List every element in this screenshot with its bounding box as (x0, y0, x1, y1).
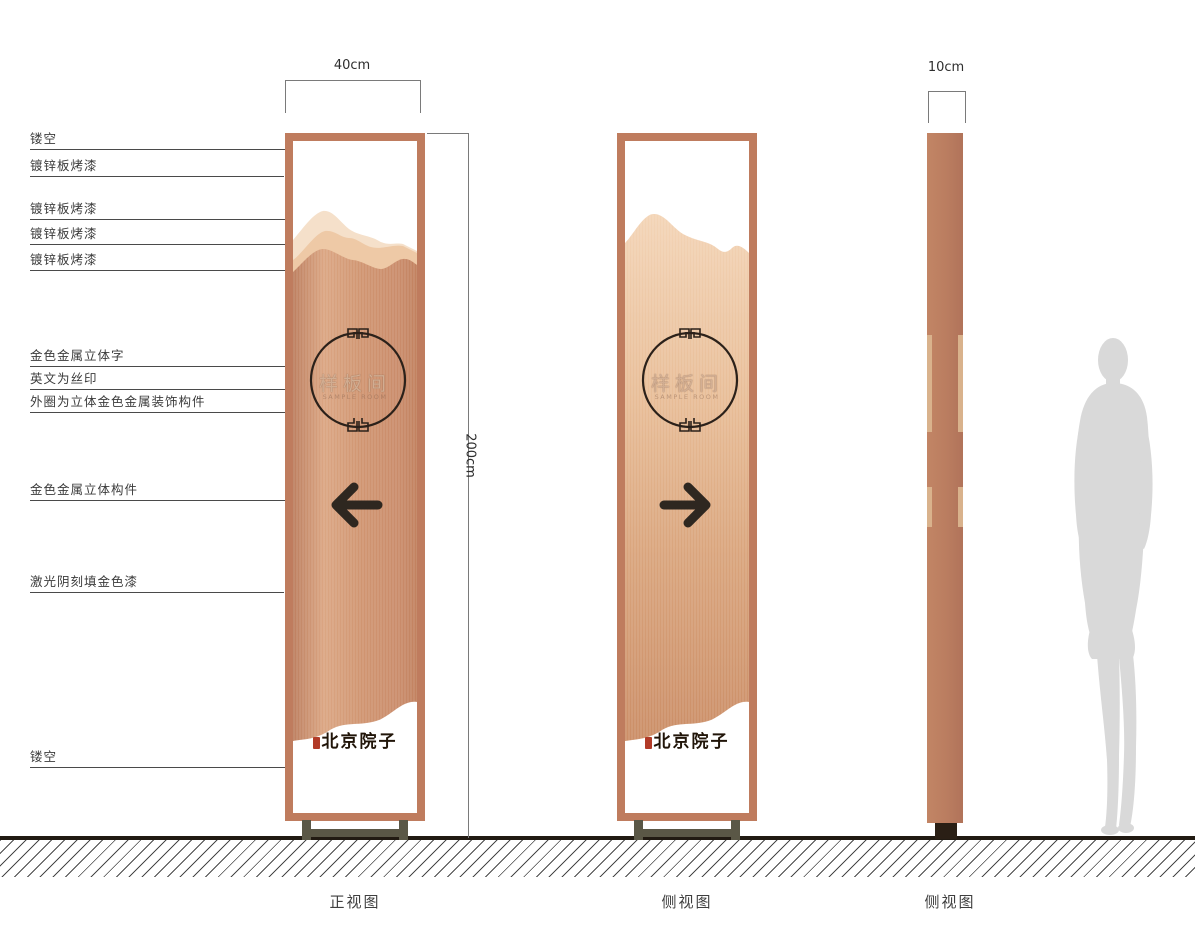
profile-foot (935, 823, 957, 839)
side-view-pillar: 样板间 SAMPLE ROOM 北京院子 (617, 133, 757, 821)
callout-galvanized-4: 镀锌板烤漆 (30, 252, 293, 271)
callout-label: 激光阴刻填金色漆 (30, 574, 138, 589)
callout-gold-letters: 金色金属立体字 (30, 348, 328, 367)
signage-design-drawing: 镂空 镀锌板烤漆 镀锌板烤漆 镀锌板烤漆 镀锌板烤漆 金色金属立体字 英文为丝印… (0, 0, 1195, 927)
callout-silkscreen: 英文为丝印 (30, 371, 322, 390)
callout-galvanized-3: 镀锌板烤漆 (30, 226, 291, 245)
callout-label: 镀锌板烤漆 (30, 252, 98, 267)
callout-galvanized-2: 镀锌板烤漆 (30, 201, 322, 220)
callout-ring-component: 外圈为立体金色金属装饰构件 (30, 394, 312, 413)
callout-label: 金色金属立体字 (30, 348, 125, 363)
callout-label: 英文为丝印 (30, 371, 98, 386)
dim-10cm-label: 10cm (900, 60, 992, 75)
profile-notch (927, 487, 932, 527)
callout-galvanized-1: 镀锌板烤漆 (30, 158, 284, 177)
panel-body-brush-texture (293, 249, 417, 741)
callout-label: 金色金属立体构件 (30, 482, 138, 497)
base-bracket-bar (305, 829, 406, 837)
dim-40cm-label: 40cm (285, 58, 419, 73)
side-profile-bar (927, 133, 963, 823)
profile-notch (958, 487, 963, 527)
view-label-front: 正视图 (285, 891, 425, 912)
callout-label: 镀锌板烤漆 (30, 226, 98, 241)
dim-10cm-bracket (928, 91, 966, 123)
callout-label: 镀锌板烤漆 (30, 201, 98, 216)
profile-notch (927, 335, 932, 432)
callout-hollow-bottom: 镂空 (30, 749, 303, 768)
dim-200cm-label: 200cm (463, 433, 478, 479)
dim-200cm-line (468, 133, 469, 838)
callout-label: 镀锌板烤漆 (30, 158, 98, 173)
ground-hatch (0, 840, 1195, 877)
dim-200cm-tick (427, 133, 468, 134)
dim-40cm-bracket (285, 80, 421, 113)
callout-hollow-top: 镂空 (30, 131, 305, 150)
front-panel-artwork (293, 141, 417, 813)
view-label-side-1: 侧视图 (617, 891, 757, 912)
callout-label: 外圈为立体金色金属装饰构件 (30, 394, 206, 409)
human-silhouette (1050, 335, 1162, 837)
side-panel-artwork (625, 141, 749, 813)
view-label-side-2: 侧视图 (880, 891, 1020, 912)
callout-label: 镂空 (30, 131, 57, 146)
callout-label: 镂空 (30, 749, 57, 764)
profile-notch (958, 335, 963, 432)
front-view-pillar: 样板间 SAMPLE ROOM 北京院子 (285, 133, 425, 821)
callout-laser-engraved: 激光阴刻填金色漆 (30, 574, 284, 593)
panel-body-brush-texture (625, 214, 749, 741)
base-bracket-bar (637, 829, 738, 837)
